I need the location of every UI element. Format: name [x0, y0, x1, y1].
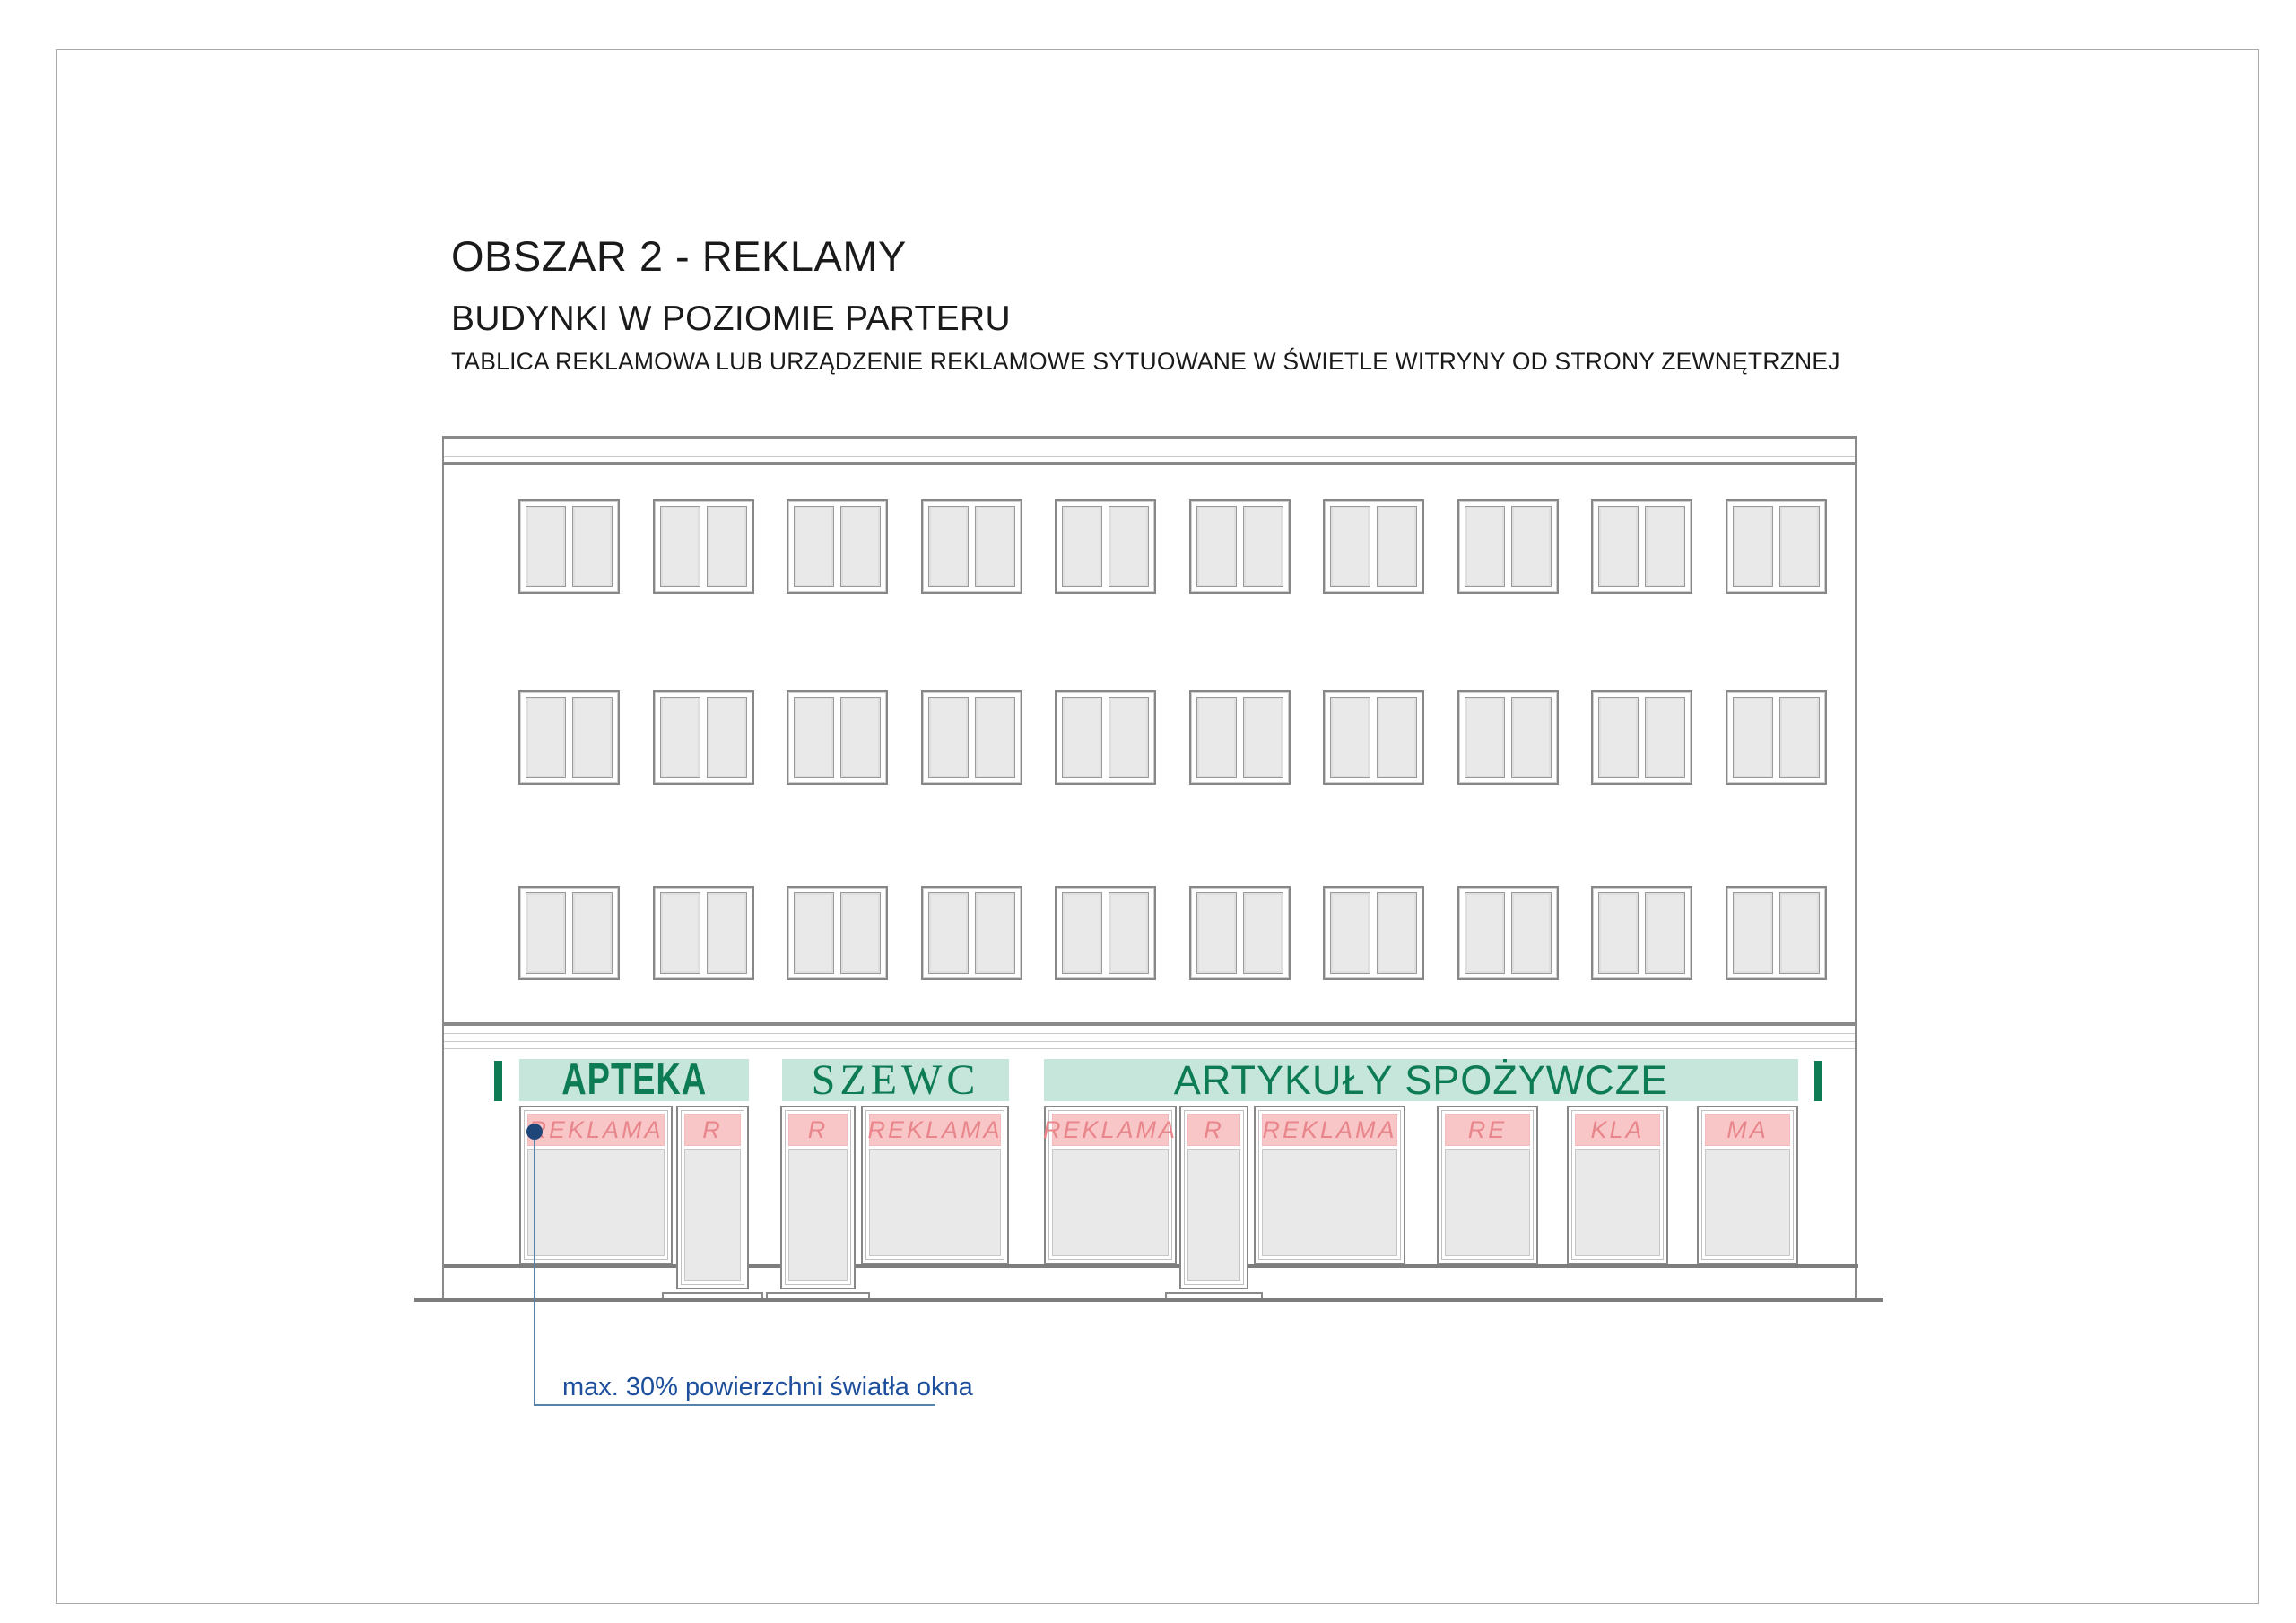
facade-window: [1189, 690, 1291, 785]
window-pane: [1062, 892, 1102, 974]
storefront-sill-line: [856, 1264, 1179, 1268]
facade-window: [1591, 886, 1692, 980]
storefront-window: RE: [1437, 1106, 1538, 1264]
page-subtitle: BUDYNKI W POZIOMIE PARTERU: [451, 301, 1011, 336]
window-pane: [1109, 697, 1149, 778]
facade-window: [1323, 690, 1424, 785]
ad-board-label: R: [808, 1116, 829, 1144]
window-pane: [1377, 892, 1417, 974]
window-pane: [572, 697, 613, 778]
facade-window: [518, 886, 620, 980]
shop-sign-apteka: APTEKA: [519, 1059, 749, 1101]
storefront-door: R: [676, 1106, 749, 1289]
window-pane: [1062, 506, 1102, 587]
shop-sign-artykuly-spozywcze: ARTYKUŁY SPOŻYWCZE: [1044, 1059, 1798, 1101]
facade-window: [1457, 886, 1559, 980]
window-pane: [1377, 506, 1417, 587]
window-pane: [794, 697, 834, 778]
annotation-leader-vertical: [534, 1132, 535, 1405]
storefront-window: KLA: [1567, 1106, 1668, 1264]
shop-sign-szewc: SZEWC: [782, 1059, 1009, 1101]
storefront-glass: [1052, 1149, 1169, 1256]
window-pane: [707, 506, 747, 587]
window-pane: [660, 697, 700, 778]
ad-board: RE: [1445, 1114, 1530, 1146]
window-pane: [1733, 697, 1773, 778]
page-title: OBSZAR 2 - REKLAMY: [451, 235, 907, 277]
facade-window: [787, 499, 888, 594]
facade-window: [1726, 886, 1827, 980]
storefront-glass: [1187, 1149, 1240, 1281]
window-pane: [1377, 697, 1417, 778]
annotation-text: max. 30% powierzchni światła okna: [562, 1373, 973, 1402]
shop-sign-artykuly-label: ARTYKUŁY SPOŻYWCZE: [1174, 1059, 1668, 1101]
window-pane: [1465, 697, 1505, 778]
window-pane: [660, 892, 700, 974]
storefront-door: R: [780, 1106, 856, 1289]
sign-zone-marker-right: [1814, 1061, 1822, 1101]
window-pane: [1330, 697, 1370, 778]
storefront-cornice-molding-2: [444, 1041, 1855, 1042]
storefront-frame: MA: [1701, 1110, 1794, 1260]
window-pane: [1511, 506, 1552, 587]
facade-window: [1055, 886, 1156, 980]
facade-window: [653, 886, 754, 980]
facade-window: [518, 690, 620, 785]
window-pane: [1511, 697, 1552, 778]
window-pane: [1330, 892, 1370, 974]
window-pane: [1645, 892, 1685, 974]
storefront-cornice-molding-3: [444, 1048, 1855, 1049]
window-pane: [660, 506, 700, 587]
window-pane: [707, 892, 747, 974]
window-pane: [1779, 506, 1820, 587]
ad-board-label: R: [1204, 1116, 1224, 1144]
storefront-frame: REKLAMA: [1048, 1110, 1172, 1260]
storefront-frame: R: [1184, 1110, 1244, 1285]
annotation-leader-horizontal: [534, 1404, 935, 1406]
window-pane: [1243, 697, 1283, 778]
storefront-window: REKLAMA: [1254, 1106, 1405, 1264]
ad-board-label: REKLAMA: [867, 1116, 1002, 1144]
ad-board: KLA: [1575, 1114, 1660, 1146]
storefront-glass: [684, 1149, 741, 1281]
storefront-glass: [869, 1149, 1001, 1256]
facade-window: [1726, 690, 1827, 785]
window-pane: [928, 892, 969, 974]
window-pane: [840, 697, 881, 778]
ad-board: R: [788, 1114, 848, 1146]
window-pane: [1243, 506, 1283, 587]
storefront-window: REKLAMA: [861, 1106, 1009, 1264]
window-pane: [1465, 892, 1505, 974]
window-pane: [1511, 892, 1552, 974]
window-pane: [526, 506, 566, 587]
window-pane: [1243, 892, 1283, 974]
sign-zone-marker-left: [494, 1061, 502, 1101]
storefront-frame: RE: [1441, 1110, 1534, 1260]
facade-window: [921, 499, 1022, 594]
window-pane: [1196, 892, 1237, 974]
window-pane: [840, 506, 881, 587]
ad-board: REKLAMA: [1262, 1114, 1397, 1146]
window-pane: [840, 892, 881, 974]
facade-window: [921, 886, 1022, 980]
storefront-sill-line: [1248, 1264, 1858, 1268]
window-pane: [1062, 697, 1102, 778]
window-pane: [1645, 697, 1685, 778]
window-pane: [1598, 892, 1639, 974]
facade-window: [653, 690, 754, 785]
window-pane: [526, 892, 566, 974]
facade-window: [1591, 690, 1692, 785]
facade-window: [1591, 499, 1692, 594]
ad-board-label: MA: [1726, 1116, 1769, 1144]
storefront-frame: R: [785, 1110, 851, 1285]
window-pane: [1733, 506, 1773, 587]
storefront-glass: [1705, 1149, 1790, 1256]
storefront-glass: [1262, 1149, 1397, 1256]
storefront-frame: REKLAMA: [524, 1110, 668, 1260]
storefront-glass: [788, 1149, 848, 1281]
window-pane: [928, 506, 969, 587]
facade-window: [1189, 499, 1291, 594]
facade-window: [1457, 499, 1559, 594]
window-pane: [975, 697, 1015, 778]
annotation-anchor-dot: [526, 1124, 543, 1140]
cornice-bottom-line: [444, 462, 1855, 465]
window-pane: [1598, 506, 1639, 587]
storefront-glass: [1575, 1149, 1660, 1256]
page-description: TABLICA REKLAMOWA LUB URZĄDZENIE REKLAMO…: [451, 350, 1840, 374]
window-pane: [572, 892, 613, 974]
storefront-frame: KLA: [1571, 1110, 1664, 1260]
cornice-thin-line: [444, 456, 1855, 457]
window-pane: [1330, 506, 1370, 587]
ad-board-label: REKLAMA: [1043, 1116, 1178, 1144]
window-pane: [1465, 506, 1505, 587]
storefront-cornice-molding-1: [444, 1033, 1855, 1034]
ad-board: REKLAMA: [1052, 1114, 1169, 1146]
shop-sign-szewc-label: SZEWC: [812, 1059, 980, 1101]
facade-window: [921, 690, 1022, 785]
ad-board: REKLAMA: [527, 1114, 665, 1146]
storefront-glass: [1445, 1149, 1530, 1256]
window-pane: [975, 892, 1015, 974]
ad-board-label: REKLAMA: [528, 1116, 663, 1144]
window-pane: [928, 697, 969, 778]
facade-window: [787, 886, 888, 980]
storefront-frame: REKLAMA: [1258, 1110, 1401, 1260]
window-pane: [1109, 892, 1149, 974]
window-pane: [794, 892, 834, 974]
facade-window: [1323, 499, 1424, 594]
ad-board-label: RE: [1468, 1116, 1508, 1144]
window-pane: [1196, 697, 1237, 778]
cornice-top-line: [444, 436, 1855, 439]
storefront-glass: [527, 1149, 665, 1256]
window-pane: [1645, 506, 1685, 587]
window-pane: [1109, 506, 1149, 587]
ad-board-label: KLA: [1590, 1116, 1644, 1144]
storefront-sill-line: [749, 1264, 780, 1268]
window-pane: [526, 697, 566, 778]
window-pane: [975, 506, 1015, 587]
window-pane: [794, 506, 834, 587]
storefront-frame: R: [681, 1110, 744, 1285]
window-pane: [1733, 892, 1773, 974]
facade-window: [1055, 499, 1156, 594]
window-pane: [572, 506, 613, 587]
storefront-sill-line: [444, 1264, 676, 1268]
window-pane: [1779, 697, 1820, 778]
facade-window: [1323, 886, 1424, 980]
window-pane: [707, 697, 747, 778]
facade-window: [1457, 690, 1559, 785]
ad-board: R: [1187, 1114, 1240, 1146]
ground-line: [414, 1298, 1883, 1302]
shop-sign-apteka-label: APTEKA: [561, 1059, 707, 1101]
storefront-cornice-line: [444, 1022, 1855, 1026]
ad-board: MA: [1705, 1114, 1790, 1146]
ad-board: R: [684, 1114, 741, 1146]
facade-window: [1726, 499, 1827, 594]
drawing-sheet: OBSZAR 2 - REKLAMY BUDYNKI W POZIOMIE PA…: [0, 0, 2296, 1623]
facade-window: [518, 499, 620, 594]
window-pane: [1598, 697, 1639, 778]
window-pane: [1196, 506, 1237, 587]
facade-window: [1055, 690, 1156, 785]
window-pane: [1779, 892, 1820, 974]
facade-window: [787, 690, 888, 785]
storefront-door: R: [1179, 1106, 1248, 1289]
storefront-window: REKLAMA: [1044, 1106, 1177, 1264]
storefront-frame: REKLAMA: [865, 1110, 1004, 1260]
building-elevation: APTEKA SZEWC ARTYKUŁY SPOŻYWCZE REKLAMAR…: [442, 436, 1857, 1298]
facade-window: [653, 499, 754, 594]
ad-board: REKLAMA: [869, 1114, 1001, 1146]
ad-board-label: REKLAMA: [1262, 1116, 1396, 1144]
ad-board-label: R: [702, 1116, 723, 1144]
storefront-window: MA: [1697, 1106, 1798, 1264]
facade-window: [1189, 886, 1291, 980]
